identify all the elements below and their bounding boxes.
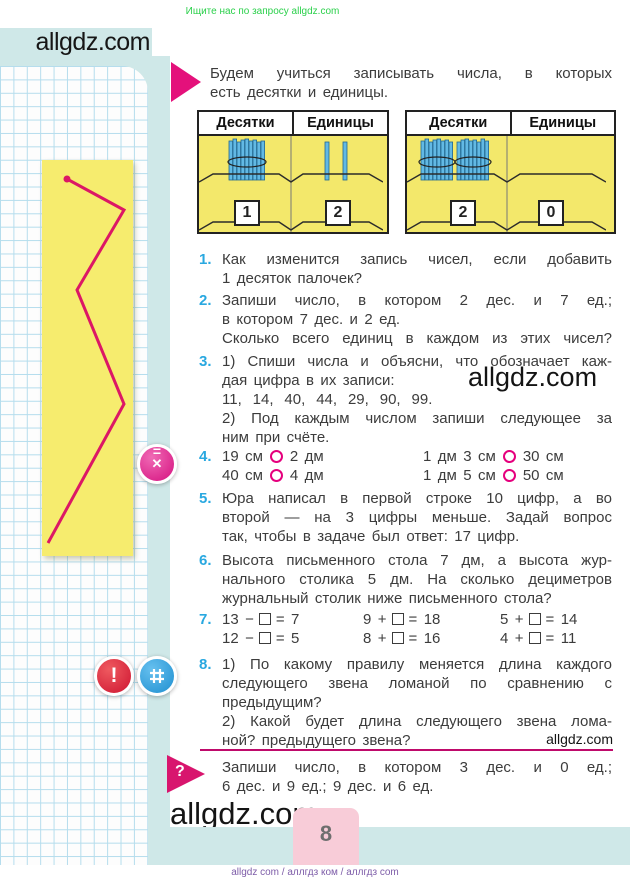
tens-header: Десятки xyxy=(407,112,510,134)
task-5: 5. Юра написал в первой строке 10 цифр, … xyxy=(222,489,612,546)
task-1: 1. Как изменится запись чисел, если доба… xyxy=(222,250,612,288)
intro-line: Будем учиться записывать числа, в которы… xyxy=(210,64,612,83)
equation-post: = 16 xyxy=(409,630,441,647)
equation-row: 13 −= 7 9 += 18 5 += 14 xyxy=(222,610,612,629)
yellow-bookmark xyxy=(42,160,133,556)
compare-right: 30 см xyxy=(523,448,564,465)
equation: 9 += 18 xyxy=(363,610,440,629)
broken-line-figure xyxy=(42,160,133,556)
place-value-table-1: Десятки Единицы 1 2 xyxy=(197,110,389,234)
units-card: 2 xyxy=(325,200,351,226)
equation: 5 += 14 xyxy=(500,610,577,629)
table-header: Десятки Единицы xyxy=(199,112,387,136)
equation-pre: 4 + xyxy=(500,630,524,647)
task-number: 6. xyxy=(199,551,212,570)
watermark-side: allgdz.com xyxy=(546,731,613,747)
equation: 8 += 16 xyxy=(363,629,440,648)
task-number: 2. xyxy=(199,291,212,310)
task-number: 3. xyxy=(199,352,212,371)
task-number: 4. xyxy=(199,447,212,466)
task-line: 2) Под каждым числом запиши следующее за xyxy=(222,409,612,428)
comparison-row: 40 см4 дм 1 дм 5 см50 см xyxy=(222,466,612,485)
question-task: Запиши число, в котором 3 дес. и 0 ед.; … xyxy=(222,758,612,796)
multiply-glyph: ✕ xyxy=(152,458,163,470)
grid-glyph xyxy=(148,667,166,685)
equation-row: 12 −= 5 8 += 16 4 += 11 xyxy=(222,629,612,648)
answer-box xyxy=(259,613,271,625)
answer-box xyxy=(529,632,541,644)
equation: 12 −= 5 xyxy=(222,629,299,648)
compare-left: 1 дм 5 см xyxy=(423,467,496,484)
task-line: Как изменится запись чисел, если добавит… xyxy=(222,250,612,269)
equation-post: = 18 xyxy=(409,611,441,628)
equation-post: = 7 xyxy=(276,611,300,628)
task-number: 5. xyxy=(199,489,212,508)
task-line: 1) По какому правилу меняется длина кажд… xyxy=(222,655,612,674)
question-mark-glyph: ? xyxy=(175,763,185,781)
task-line: 6 дес. и 9 ед.; 9 дес. и 6 ед. xyxy=(222,777,612,796)
task-line: Юра написал в первой строке 10 цифр, а в… xyxy=(222,489,612,508)
tens-card: 2 xyxy=(450,200,476,226)
task-2: 2. Запиши число, в котором 2 дес. и 7 ед… xyxy=(222,291,612,348)
answer-box xyxy=(392,632,404,644)
equation: 13 −= 7 xyxy=(222,610,299,629)
top-banner: Ищите нас по запросу allgdz.com xyxy=(0,6,525,17)
table-header: Десятки Единицы xyxy=(407,112,614,136)
tens-header: Десятки xyxy=(199,112,292,134)
compare-left: 19 см xyxy=(222,448,263,465)
task-4: 4. 19 см2 дм 1 дм 3 см30 см 40 см4 дм 1 … xyxy=(222,447,612,485)
place-value-table-2: Десятки Единицы xyxy=(405,110,616,234)
page-number-tab: 8 xyxy=(293,808,359,865)
textbook-page: Ищите нас по запросу allgdz.com allgdz.c… xyxy=(0,0,630,895)
footer-links: allgdz com / аллгдз ком / аллгдз com xyxy=(0,867,630,878)
task-line: Запиши число, в котором 3 дес. и 0 ед.; xyxy=(222,758,612,777)
compare-right: 2 дм xyxy=(290,448,324,465)
task-line: Запиши число, в котором 2 дес. и 7 ед.; xyxy=(222,291,612,310)
answer-box xyxy=(392,613,404,625)
page-number: 8 xyxy=(320,821,332,847)
comparison-circle xyxy=(270,469,283,482)
units-header: Единицы xyxy=(292,112,387,134)
equation-pre: 8 + xyxy=(363,630,387,647)
task-line: предыдущим? xyxy=(222,693,612,712)
equation-post: = 14 xyxy=(546,611,578,628)
task-line: так, чтобы в задаче был ответ: 17 цифр. xyxy=(222,527,612,546)
table-body: 1 2 xyxy=(199,136,387,232)
site-logo: allgdz.com xyxy=(36,28,151,56)
answer-box xyxy=(529,613,541,625)
intro-arrow-icon xyxy=(171,62,201,102)
compare-left: 1 дм 3 см xyxy=(423,448,496,465)
tens-card: 1 xyxy=(234,200,260,226)
site-header: allgdz.com xyxy=(0,28,152,56)
sticks-and-pockets xyxy=(407,136,606,232)
task-number: 7. xyxy=(199,610,212,629)
task-6: 6. Высота письменного стола 7 дм, а высо… xyxy=(222,551,612,608)
multiply-equals-icon: ✕ = xyxy=(137,444,177,484)
table-body: 2 0 xyxy=(407,136,614,232)
task-line: ним при счёте. xyxy=(222,428,612,447)
task-number: 8. xyxy=(199,655,212,674)
grid-icon xyxy=(137,656,177,696)
comparison-circle xyxy=(503,450,516,463)
comparison-row: 19 см2 дм 1 дм 3 см30 см xyxy=(222,447,612,466)
equation-post: = 11 xyxy=(546,630,577,647)
compare-right: 50 см xyxy=(523,467,564,484)
task-line: следующего звена ломаной по сравнению с xyxy=(222,674,612,693)
compare-left: 40 см xyxy=(222,467,263,484)
comparison-circle xyxy=(503,469,516,482)
question-arrow-icon xyxy=(167,755,205,793)
exclamation-icon: ! xyxy=(94,656,134,696)
task-line: 2) Какой будет длина следующего звена ло… xyxy=(222,712,612,731)
task-line: Сколько всего единиц в каждом из этих чи… xyxy=(222,329,612,348)
equals-glyph: = xyxy=(153,447,161,456)
intro-line: есть десятки и единицы. xyxy=(210,83,612,102)
watermark-inline: allgdz.com xyxy=(468,362,597,393)
task-line: второй — на 3 цифры меньше. Задай вопрос xyxy=(222,508,612,527)
task-line: журнальный столик ниже письменного стола… xyxy=(222,589,612,608)
equation-pre: 13 − xyxy=(222,611,254,628)
task-line: Высота письменного стола 7 дм, а высота … xyxy=(222,551,612,570)
section-divider xyxy=(200,749,613,751)
task-line: в котором 7 дес. и 2 ед. xyxy=(222,310,612,329)
comparison-circle xyxy=(270,450,283,463)
task-line: 1 десяток палочек? xyxy=(222,269,612,288)
bottom-strip xyxy=(170,827,630,865)
task-line: нального столика 5 дм. На сколько дециме… xyxy=(222,570,612,589)
equation-pre: 12 − xyxy=(222,630,254,647)
task-7: 7. 13 −= 7 9 += 18 5 += 14 12 −= 5 8 += … xyxy=(222,610,612,648)
equation-post: = 5 xyxy=(276,630,300,647)
equation-pre: 9 + xyxy=(363,611,387,628)
intro-text: Будем учиться записывать числа, в которы… xyxy=(210,64,612,102)
answer-box xyxy=(259,632,271,644)
equation: 4 += 11 xyxy=(500,629,576,648)
units-header: Единицы xyxy=(510,112,615,134)
task-number: 1. xyxy=(199,250,212,269)
sticks-and-pockets xyxy=(199,136,383,232)
compare-right: 4 дм xyxy=(290,467,324,484)
units-card: 0 xyxy=(538,200,564,226)
equation-pre: 5 + xyxy=(500,611,524,628)
